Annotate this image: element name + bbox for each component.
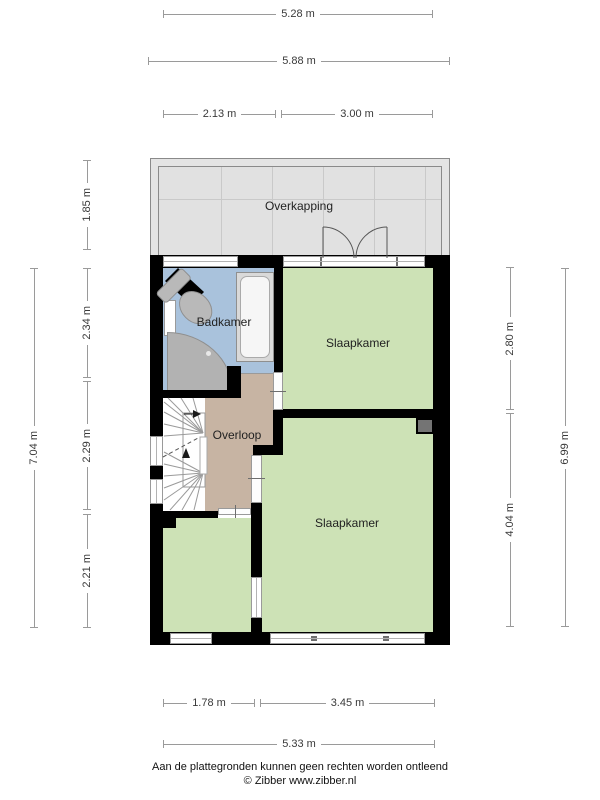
dimension-label: 1.78 m <box>187 697 231 709</box>
room-label-slaapkamer-bottom: Slaapkamer <box>315 516 379 530</box>
dimension-label: 7.04 m <box>28 426 40 470</box>
wall-badkamer-slaapkamer <box>274 268 283 374</box>
dimension-label: 2.34 m <box>81 301 93 345</box>
shower-drain <box>206 351 211 356</box>
dimension-label: 3.45 m <box>326 697 370 709</box>
dimension-right-total: 6.99 m <box>558 268 572 627</box>
hall-overloop-floor-lower <box>205 398 253 511</box>
wall-overloop-right <box>273 410 283 447</box>
badkamer-door-threshold <box>241 373 274 374</box>
dimension-top-seg-left: 2.13 m <box>163 108 276 120</box>
dimension-right-top: 2.80 m <box>503 267 517 410</box>
room-label-slaapkamer-top: Slaapkamer <box>326 336 390 350</box>
dimension-label: 4.04 m <box>504 498 516 542</box>
room-small-floor <box>163 518 251 632</box>
duct-shaft <box>416 418 434 434</box>
dimension-label: 5.33 m <box>277 738 321 750</box>
door-overloop-slaapkamer-bottom <box>251 455 262 503</box>
dimension-label: 6.99 m <box>559 426 571 470</box>
wall-between-slaapkamers <box>273 409 433 418</box>
dimension-top-inner: 5.28 m <box>163 8 433 20</box>
dimension-bottom-seg-right: 3.45 m <box>260 697 435 709</box>
window-top-slaapkamer <box>283 256 425 267</box>
window-top-badkamer <box>163 256 238 267</box>
wall-badkamer-bottom-left <box>163 390 233 398</box>
wall-right <box>433 255 450 645</box>
footer-disclaimer: Aan de plattegronden kunnen geen rechten… <box>0 761 600 773</box>
footer-credit: © Zibber www.zibber.nl <box>0 775 600 787</box>
dimension-top-seg-right: 3.00 m <box>281 108 433 120</box>
room-label-overkapping: Overkapping <box>265 199 333 213</box>
dimension-label: 2.21 m <box>81 549 93 593</box>
dimension-right-bottom: 4.04 m <box>503 413 517 627</box>
dimension-left-overkapping: 1.85 m <box>80 160 94 250</box>
dimension-label: 3.00 m <box>335 108 379 120</box>
dimension-top-outer: 5.88 m <box>148 55 450 67</box>
dimension-bottom-total: 5.33 m <box>163 738 435 750</box>
dimension-left-total: 7.04 m <box>27 268 41 628</box>
window-left-stairs-lower <box>150 479 163 504</box>
dimension-left-overloop: 2.29 m <box>80 381 94 510</box>
room-label-badkamer: Badkamer <box>197 315 252 329</box>
opening-between-bottom-rooms <box>251 577 262 618</box>
dimension-bottom-seg-left: 1.78 m <box>163 697 255 709</box>
floorplan-page: 5.28 m 5.88 m 2.13 m 3.00 m 1.85 m 2.34 … <box>0 0 600 800</box>
dimension-label: 5.28 m <box>276 8 320 20</box>
dimension-label: 2.80 m <box>504 317 516 361</box>
wall-badkamer-bottom-step <box>227 366 241 398</box>
dimension-label: 2.29 m <box>81 424 93 468</box>
room-label-overloop: Overloop <box>213 428 262 442</box>
bathroom-niche <box>164 300 176 336</box>
window-bottom-small-room <box>170 633 212 644</box>
window-bottom-slaapkamer <box>270 633 425 644</box>
dimension-left-kamer: 2.21 m <box>80 514 94 628</box>
door-overloop-slaapkamer-top <box>273 372 283 410</box>
wall-small-room-stub <box>163 518 176 528</box>
stairs-floor <box>163 398 205 511</box>
wall-small-room-top <box>150 511 218 518</box>
dimension-label: 2.13 m <box>198 108 242 120</box>
dimension-label: 1.85 m <box>81 183 93 227</box>
dimension-left-badkamer: 2.34 m <box>80 268 94 378</box>
door-overloop-small-room <box>218 508 251 515</box>
dimension-label: 5.88 m <box>277 55 321 67</box>
wall-overloop-step <box>253 445 283 455</box>
window-left-stairs-upper <box>150 436 163 466</box>
